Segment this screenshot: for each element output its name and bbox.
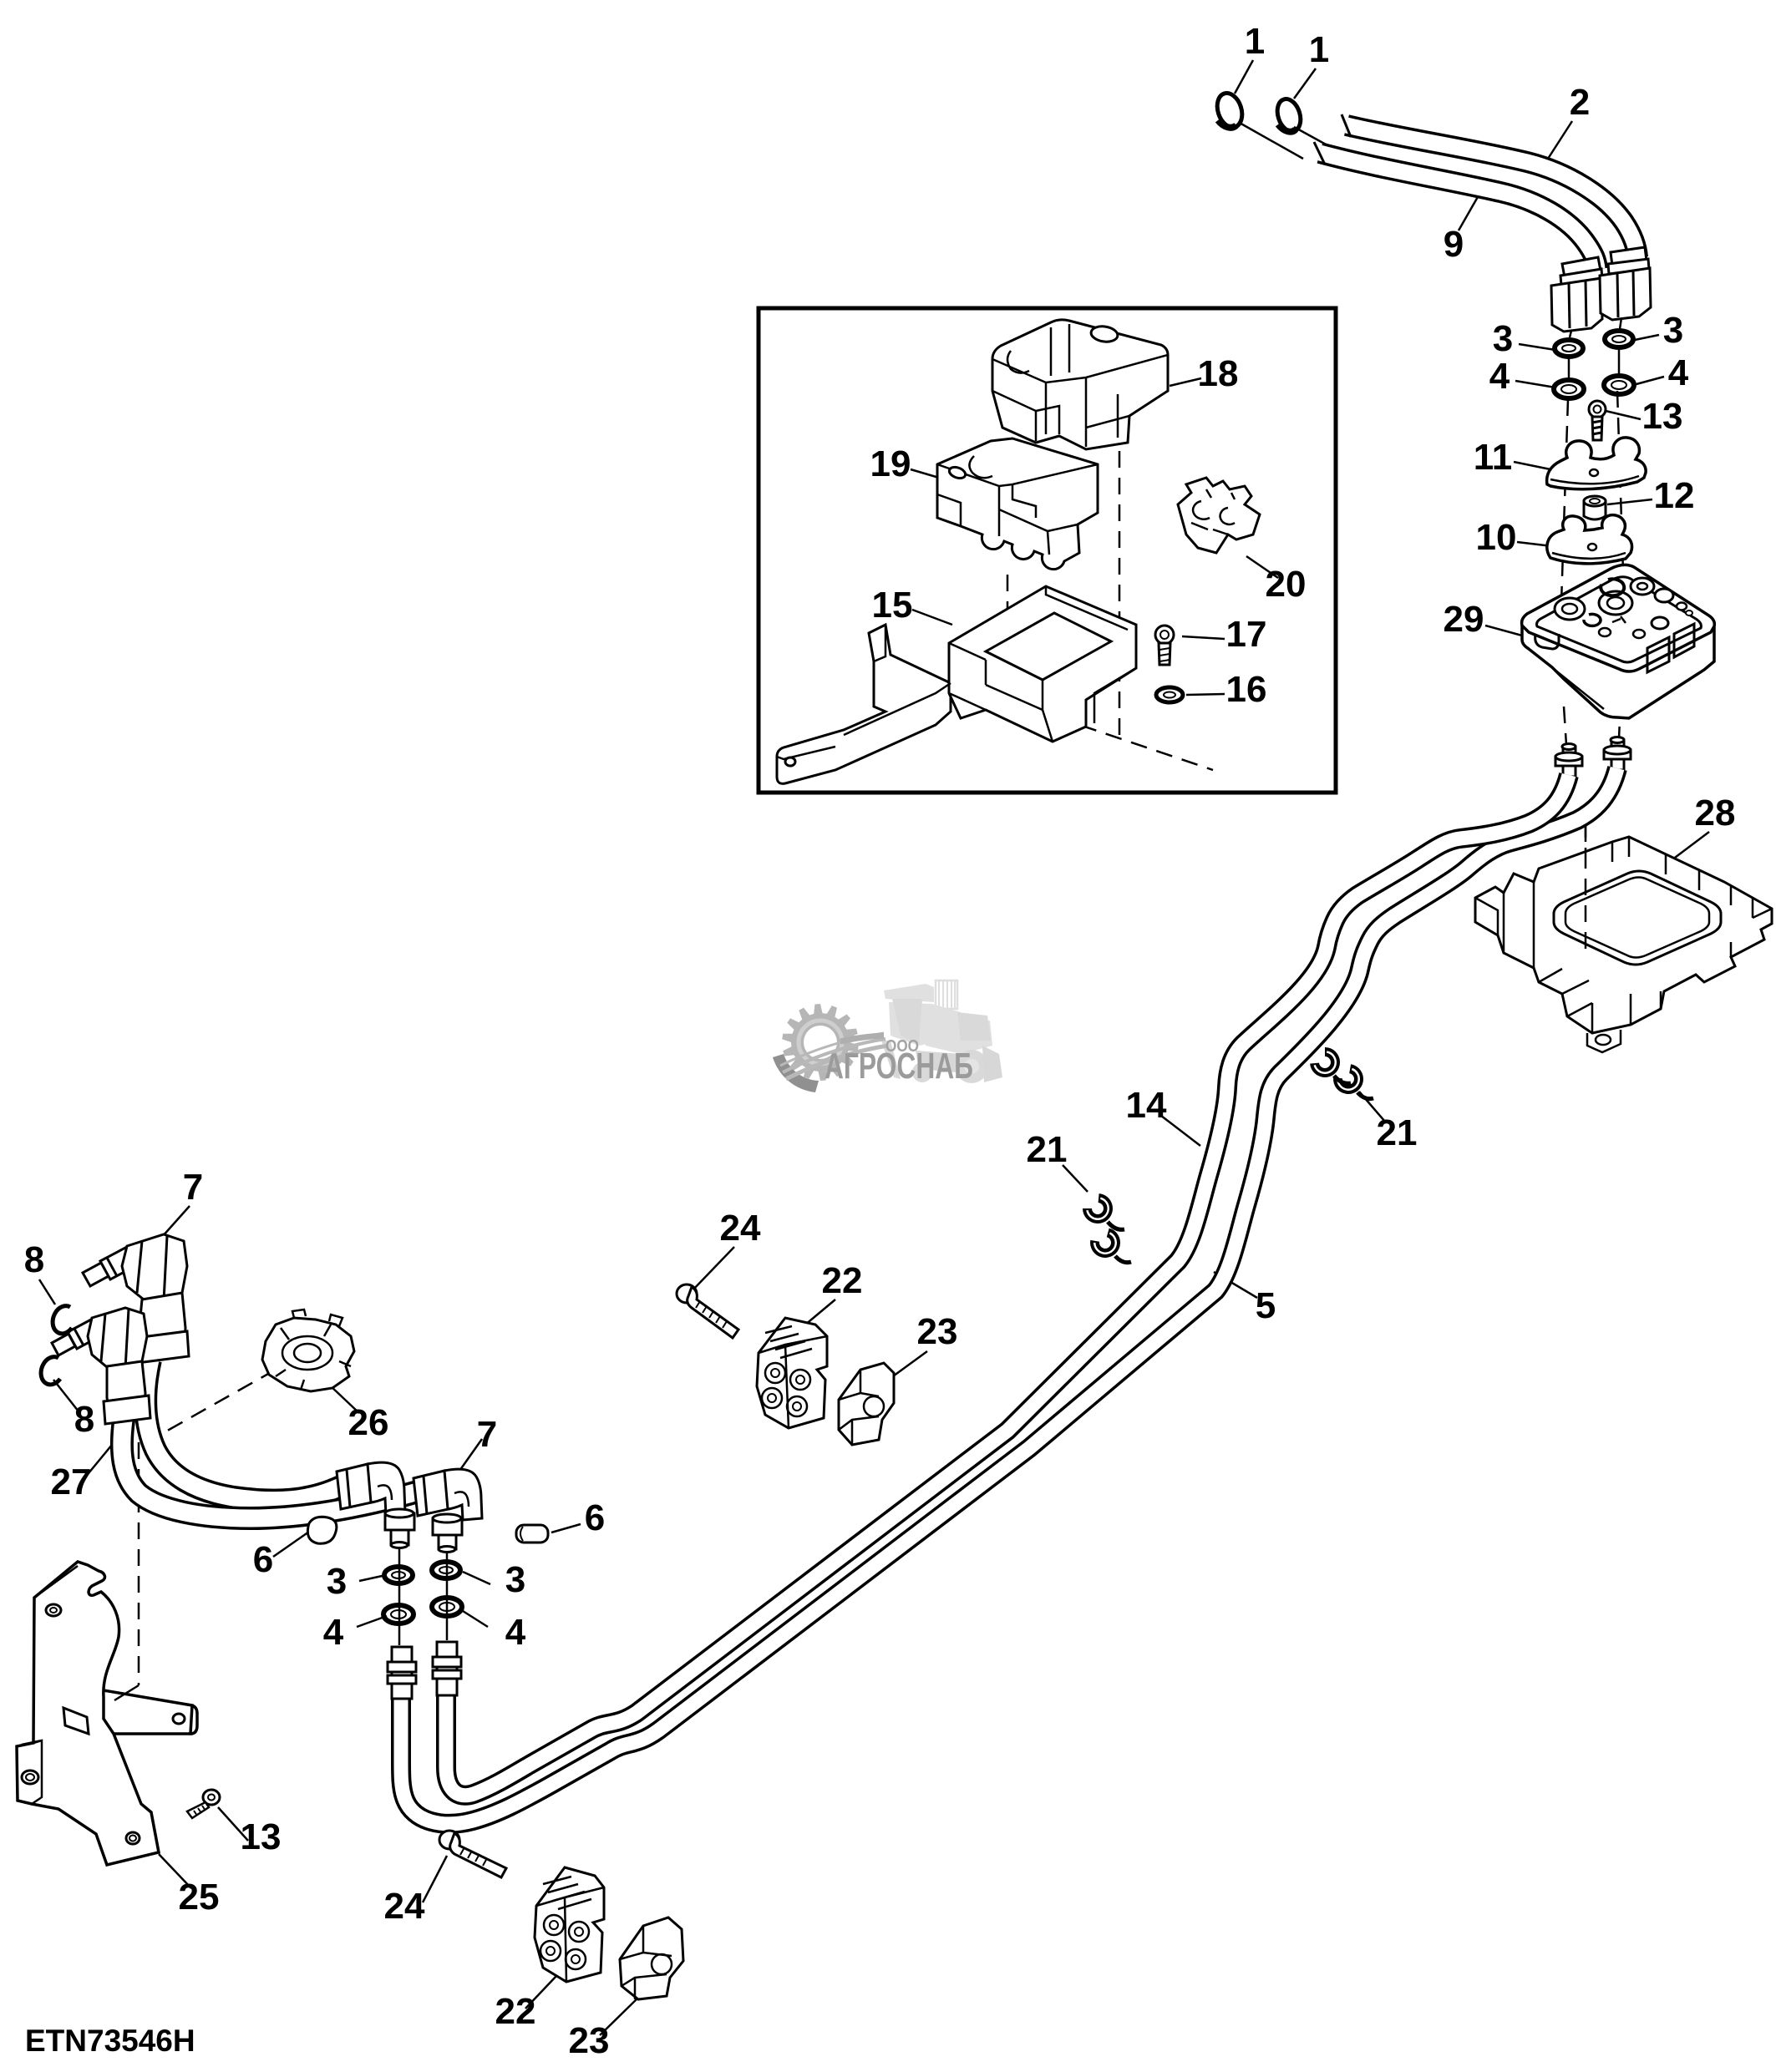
svg-text:4: 4 (323, 1612, 344, 1653)
svg-text:25: 25 (179, 1877, 220, 1917)
svg-text:2: 2 (1570, 82, 1590, 123)
svg-text:15: 15 (872, 585, 913, 626)
svg-text:1: 1 (1309, 29, 1329, 70)
svg-text:3: 3 (505, 1559, 525, 1600)
svg-text:6: 6 (585, 1497, 605, 1538)
svg-text:23: 23 (917, 1311, 958, 1352)
svg-text:13: 13 (1642, 396, 1683, 437)
svg-text:22: 22 (495, 1991, 536, 2032)
svg-text:18: 18 (1198, 353, 1239, 394)
svg-text:28: 28 (1695, 793, 1736, 833)
svg-text:12: 12 (1654, 475, 1695, 516)
svg-text:6: 6 (253, 1539, 273, 1580)
svg-text:13: 13 (241, 1816, 282, 1857)
svg-text:4: 4 (1668, 352, 1689, 393)
svg-text:8: 8 (24, 1239, 44, 1280)
svg-text:22: 22 (822, 1260, 863, 1301)
svg-text:23: 23 (569, 2020, 610, 2061)
svg-text:10: 10 (1476, 517, 1517, 558)
svg-text:14: 14 (1126, 1085, 1167, 1126)
svg-text:АГРОСНАБ: АГРОСНАБ (825, 1046, 973, 1087)
svg-text:17: 17 (1226, 614, 1267, 655)
svg-text:3: 3 (327, 1561, 347, 1602)
svg-text:9: 9 (1444, 224, 1464, 265)
svg-text:8: 8 (74, 1399, 94, 1440)
svg-text:29: 29 (1444, 599, 1484, 640)
svg-text:4: 4 (505, 1612, 526, 1653)
svg-text:11: 11 (1474, 437, 1513, 478)
svg-text:21: 21 (1027, 1129, 1068, 1170)
svg-text:3: 3 (1663, 310, 1683, 351)
svg-text:7: 7 (477, 1414, 497, 1455)
svg-text:24: 24 (384, 1886, 425, 1927)
svg-text:16: 16 (1226, 669, 1267, 710)
svg-text:7: 7 (183, 1167, 203, 1208)
svg-text:20: 20 (1266, 564, 1307, 605)
svg-text:5: 5 (1256, 1285, 1276, 1326)
svg-text:4: 4 (1489, 356, 1510, 397)
svg-text:3: 3 (1493, 318, 1513, 359)
svg-text:1: 1 (1245, 21, 1265, 62)
svg-text:27: 27 (51, 1462, 92, 1502)
svg-text:24: 24 (720, 1208, 761, 1249)
svg-text:ETN73546H: ETN73546H (25, 2024, 195, 2058)
svg-text:19: 19 (870, 443, 911, 484)
